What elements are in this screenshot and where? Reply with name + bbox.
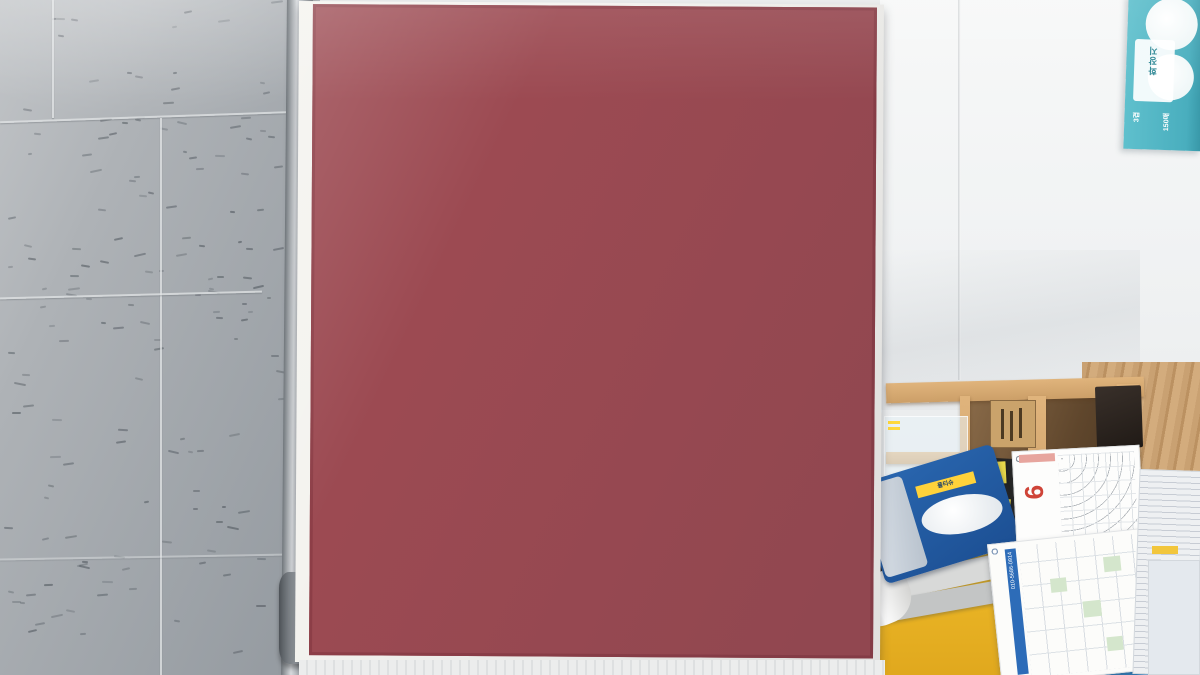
calendar-header [1019, 453, 1055, 463]
yellow-tab [1152, 546, 1178, 554]
document-stack [1148, 560, 1200, 675]
product-label: 화장지 [1133, 39, 1175, 102]
wooden-stamp-box [990, 400, 1036, 448]
highlight-cell [1106, 636, 1123, 652]
highlight-cell [1083, 600, 1103, 618]
teal-product-box: 화장지 3겹 150매 [1123, 0, 1200, 151]
phone-number: 010-5686-0914 [1008, 552, 1017, 590]
highlight-cell [1103, 556, 1121, 573]
wall-seam [160, 118, 162, 675]
product-spec: 3겹 [1133, 112, 1141, 123]
poster-board: 장자동 택지개발지구 경계 201동203동205동207동208동211동21… [295, 1, 884, 666]
wall-base-strip [299, 660, 885, 675]
product-spec: 150매 [1163, 113, 1172, 131]
calendar-month: 6 [1021, 484, 1048, 500]
tissue-graphic [918, 488, 1006, 541]
monthly-planner: 010-5686-0914 [987, 528, 1153, 675]
wall-marks [0, 0, 290, 675]
calendar-grid [1058, 451, 1138, 539]
wall-corner [958, 0, 961, 380]
product-title: 화장지 [1148, 45, 1159, 75]
poster-grid: 장자동 택지개발지구 경계 201동203동205동207동208동211동21… [309, 4, 877, 658]
wall-seam [52, 0, 54, 118]
office-photo: 화장지 3겹 150매 K 물티슈 [0, 0, 1200, 675]
highlight-cell [1050, 577, 1067, 593]
black-box [1095, 385, 1143, 449]
